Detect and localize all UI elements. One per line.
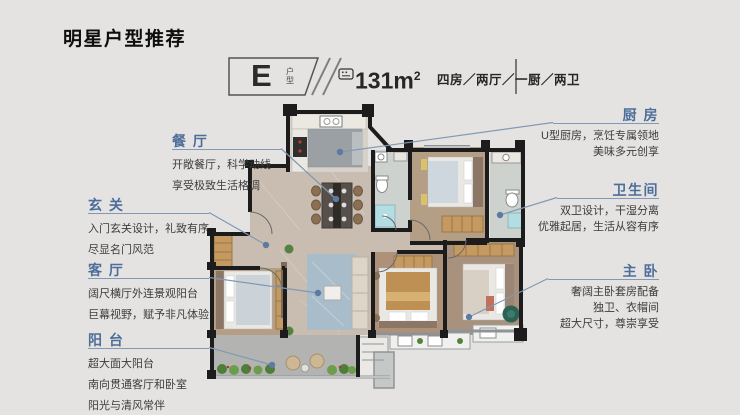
unit-badge-shape: [229, 58, 318, 95]
annotation-line: U型厨房，烹饪专属领地: [499, 128, 659, 144]
annotation-line: 超大面大阳台: [88, 354, 228, 375]
coffee-table: [324, 286, 341, 300]
annotation-line: 独卫、衣帽间: [499, 300, 659, 316]
unit-type-letter: E: [251, 57, 272, 95]
annotation-title: 餐 厅: [172, 133, 208, 149]
annotation-line: 阔尺横厅外连景观阳台: [88, 284, 228, 305]
brochure-canvas: 明星户型推荐 E 户型 131m2 四房／两厅／一厨／两卫 餐 厅 开敞餐厅，科…: [0, 0, 740, 415]
annotation-line: 尽显名门风范: [88, 240, 228, 261]
annotation-title: 阳 台: [88, 332, 124, 348]
area-value: 131m2: [355, 60, 421, 97]
annotation-title: 玄 关: [88, 197, 124, 213]
annotation-title: 客 厅: [88, 262, 124, 278]
annotation-master-bedroom: 主 卧 奢阔主卧套房配备 独卫、衣帽间 超大尺寸，尊崇享受: [499, 261, 659, 332]
annotation-title: 主 卧: [623, 263, 659, 279]
annotation-title: 卫生间: [613, 182, 660, 198]
plant: [285, 245, 294, 254]
annotation-line: 南向贯通客厅和卧室: [88, 375, 228, 396]
annotation-living: 客 厅 阔尺横厅外连景观阳台 巨幕视野，赋予非凡体验: [88, 260, 228, 326]
area-number: 131m: [355, 68, 414, 94]
annotation-line: 开敞餐厅，科学动线: [172, 155, 312, 176]
side-table: [301, 364, 309, 372]
annotation-line: 美味多元创享: [499, 144, 659, 160]
wicker-chair: [286, 356, 300, 370]
dining-table: [312, 183, 363, 228]
area-superscript: 2: [414, 69, 421, 83]
annotation-line: 奢阔主卧套房配备: [499, 284, 659, 300]
annotation-line: 巨幕视野，赋予非凡体验: [88, 305, 228, 326]
wicker-chair: [310, 354, 324, 368]
annotation-line: 享受极致生活格调: [172, 176, 312, 197]
unit-type-suffix: 户型: [286, 67, 296, 85]
annotation-line: 双卫设计，干湿分离: [499, 203, 659, 219]
annotation-line: 入门玄关设计，礼致有序: [88, 219, 228, 240]
annotation-balcony: 阳 台 超大面大阳台 南向贯通客厅和卧室 阳光与清风常伴: [88, 330, 228, 415]
annotation-title: 厨 房: [623, 107, 659, 123]
annotation-bathroom: 卫生间 双卫设计，干湿分离 优雅起居，生活从容有序: [499, 180, 659, 235]
page-title: 明星户型推荐: [63, 24, 186, 51]
annotation-line: 超大尺寸，尊崇享受: [499, 316, 659, 332]
annotation-foyer: 玄 关 入门玄关设计，礼致有序 尽显名门风范: [88, 195, 228, 261]
annotation-line: 优雅起居，生活从容有序: [499, 219, 659, 235]
floor-area-icon: [339, 69, 353, 79]
annotation-line: 阳光与清风常伴: [88, 396, 228, 415]
unit-layout-desc: 四房／两厅／一厨／两卫: [437, 69, 580, 88]
annotation-kitchen: 厨 房 U型厨房，烹饪专属领地 美味多元创享: [499, 105, 659, 160]
annotation-dining: 餐 厅 开敞餐厅，科学动线 享受极致生活格调: [172, 131, 312, 197]
